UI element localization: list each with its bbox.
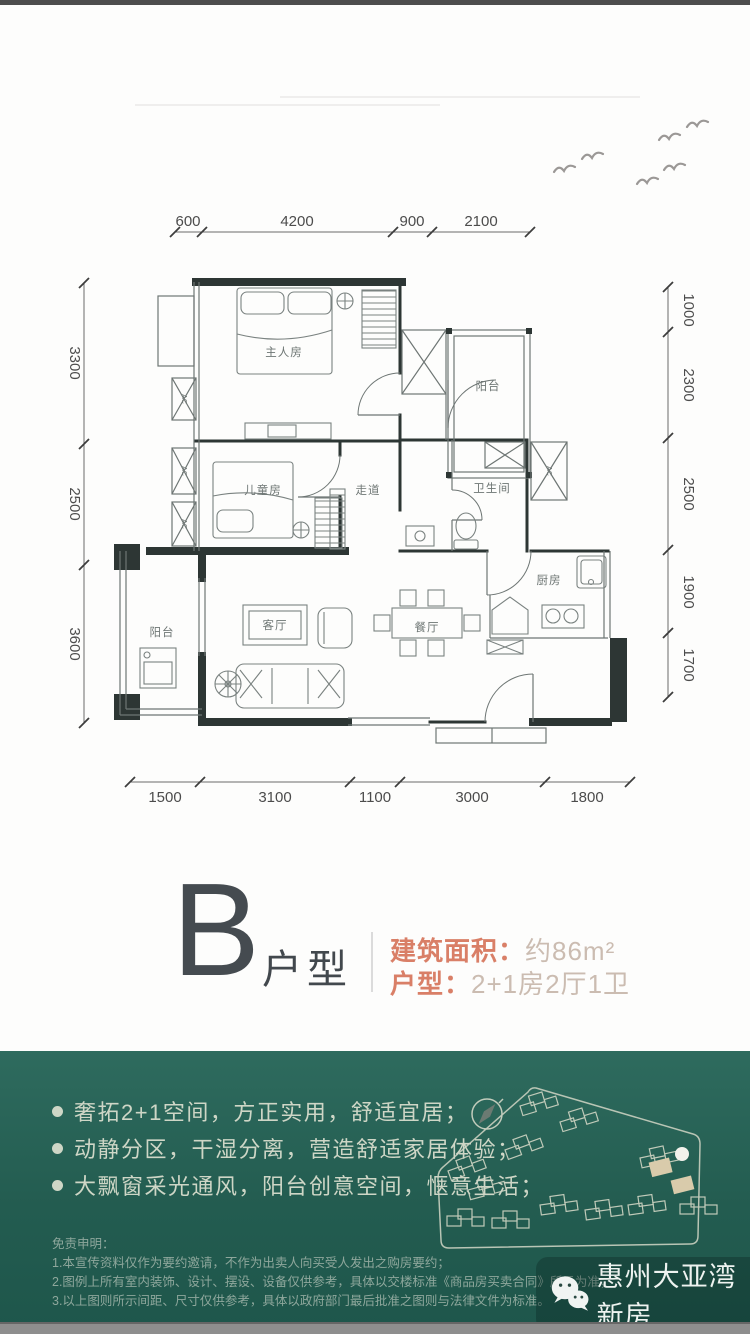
svg-text:1500: 1500 [148, 789, 181, 806]
divider [371, 932, 373, 992]
svg-text:AC: AC [180, 394, 187, 404]
area-label: 建筑面积： [390, 936, 525, 966]
svg-text:1800: 1800 [570, 789, 603, 806]
area-row: 建筑面积：约86m² [390, 931, 615, 968]
feature-item: 动静分区，干湿分离，营造舒适家居体验； [52, 1132, 521, 1164]
bird-icon [582, 153, 603, 159]
room-labels: 主人房 儿童房 走道 卫生间 阳台 阳台 客厅 餐厅 厨房 AC AC AC A… [150, 346, 562, 639]
unit-letter: B [172, 864, 260, 996]
disclaimer-block: 免责申明： 1.本宣传资料仅作为要约邀请，不作为出卖人向买受人发出之购房要约； … [52, 1235, 612, 1311]
svg-text:3100: 3100 [258, 789, 291, 806]
svg-text:AC: AC [180, 466, 187, 476]
bird-icon [664, 164, 685, 170]
feature-item: 奢拓2+1空间，方正实用，舒适宜居； [52, 1095, 468, 1127]
svg-text:3000: 3000 [455, 789, 488, 806]
disclaimer-line: 3.以上图则所示间距、尺寸仅供参考，具体以政府部门最后批准之图则与法律文件为标准… [52, 1292, 612, 1311]
svg-text:3300: 3300 [66, 346, 83, 379]
master-wardrobe [362, 290, 396, 348]
bird-icon [687, 121, 708, 127]
furniture [140, 288, 606, 708]
label-dining: 餐厅 [415, 620, 440, 634]
svg-text:2500: 2500 [680, 477, 697, 510]
bullet-icon [52, 1180, 63, 1191]
fan [215, 671, 241, 697]
label-corridor: 走道 [356, 483, 381, 497]
armchair [318, 608, 352, 648]
shaft [402, 330, 446, 394]
layout-label: 户型： [390, 969, 471, 999]
bottom-border-bar [0, 1322, 750, 1334]
master-bed [237, 288, 353, 374]
sofa [236, 664, 344, 708]
feature-text: 大飘窗采光通风，阳台创意空间，惬意生活； [74, 1169, 544, 1201]
bath-window [485, 442, 525, 468]
feature-text: 奢拓2+1空间，方正实用，舒适宜居； [74, 1095, 468, 1127]
feature-section: 奢拓2+1空间，方正实用，舒适宜居； 动静分区，干湿分离，营造舒适家居体验； 大… [0, 1051, 750, 1334]
compass-icon [472, 1099, 503, 1129]
svg-text:2300: 2300 [680, 368, 697, 401]
walls-thin [120, 282, 610, 743]
svg-text:1900: 1900 [680, 575, 697, 608]
toilet [454, 513, 478, 549]
sky-birds [0, 0, 750, 210]
stove [542, 605, 584, 628]
label-kids: 儿童房 [244, 483, 282, 497]
svg-text:600: 600 [175, 213, 200, 230]
sink [577, 556, 606, 588]
bird-icon [637, 178, 658, 184]
svg-text:2100: 2100 [464, 213, 497, 230]
wechat-icon [550, 1271, 591, 1317]
layout-row: 户型：2+1房2厅1卫 [390, 964, 630, 1001]
floorplan: 600 4200 900 2100 3300 2500 3600 1000 23… [0, 210, 750, 810]
flyer-page: 600 4200 900 2100 3300 2500 3600 1000 23… [0, 0, 750, 1334]
svg-text:900: 900 [399, 213, 424, 230]
basin [406, 526, 434, 546]
disclaimer-line: 1.本宣传资料仅作为要约邀请，不作为出卖人向买受人发出之购房要约； [52, 1254, 612, 1273]
label-balcony-left: 阳台 [150, 625, 175, 639]
shoe-cabinet [487, 640, 523, 654]
svg-text:3600: 3600 [66, 627, 83, 660]
unit-suffix: 户型 [262, 937, 352, 995]
label-kitchen: 厨房 [537, 574, 562, 587]
svg-text:1000: 1000 [680, 293, 697, 326]
svg-text:2500: 2500 [66, 487, 83, 520]
fridge [492, 597, 528, 634]
label-bath: 卫生间 [473, 481, 511, 495]
wechat-watermark: 惠州大亚湾新房 [536, 1257, 750, 1331]
svg-text:AC: AC [545, 466, 552, 476]
layout-value: 2+1房2厅1卫 [471, 969, 630, 999]
bullet-icon [52, 1143, 63, 1154]
bullet-icon [52, 1106, 63, 1117]
label-balcony-top: 阳台 [476, 379, 501, 393]
disclaimer-title: 免责申明： [52, 1235, 612, 1254]
svg-text:4200: 4200 [280, 213, 313, 230]
svg-text:1100: 1100 [359, 789, 391, 806]
disclaimer-line: 2.图例上所有室内装饰、设计、摆设、设备仅供参考，具体以交楼标准《商品房买卖合同… [52, 1273, 612, 1292]
corridor-cabinet [330, 489, 345, 549]
label-living: 客厅 [263, 618, 288, 632]
highlighted-buildings [649, 1147, 695, 1194]
area-value: 约86m² [525, 936, 615, 966]
feature-item: 大飘窗采光通风，阳台创意空间，惬意生活； [52, 1169, 544, 1201]
label-master: 主人房 [265, 346, 303, 359]
feature-text: 动静分区，干湿分离，营造舒适家居体验； [74, 1132, 521, 1164]
svg-text:1700: 1700 [680, 648, 697, 681]
washing-machine [140, 648, 176, 688]
kids-bed [213, 462, 309, 538]
bird-icon [554, 166, 575, 172]
bird-icon [659, 134, 680, 140]
svg-text:AC: AC [180, 519, 187, 529]
